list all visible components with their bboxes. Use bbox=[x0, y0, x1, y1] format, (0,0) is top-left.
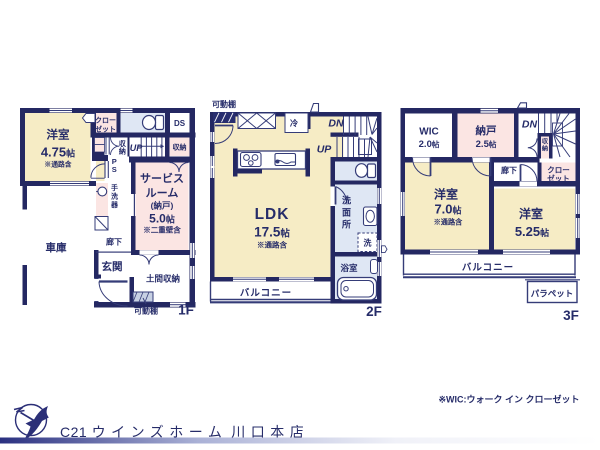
svg-text:クロー: クロー bbox=[547, 165, 570, 175]
svg-text:2F: 2F bbox=[366, 304, 382, 319]
svg-text:1F: 1F bbox=[178, 303, 194, 318]
svg-text:2.5帖: 2.5帖 bbox=[476, 139, 497, 150]
svg-text:UP: UP bbox=[130, 143, 143, 153]
svg-text:収納: 収納 bbox=[173, 143, 187, 152]
svg-text:収: 収 bbox=[542, 138, 549, 146]
svg-text:ルーム: ルーム bbox=[146, 187, 179, 200]
svg-text:DN: DN bbox=[522, 119, 538, 131]
svg-text:廊下: 廊下 bbox=[501, 165, 517, 175]
svg-text:※通路含: ※通路含 bbox=[44, 160, 71, 169]
svg-text:洋室: 洋室 bbox=[47, 128, 70, 142]
svg-text:冷: 冷 bbox=[290, 118, 298, 128]
svg-text:土間収納: 土間収納 bbox=[146, 274, 180, 284]
svg-text:3F: 3F bbox=[563, 308, 579, 323]
svg-text:器: 器 bbox=[110, 200, 119, 209]
svg-text:所: 所 bbox=[342, 219, 351, 230]
svg-text:洋室: 洋室 bbox=[519, 206, 543, 221]
svg-text:DS: DS bbox=[174, 119, 186, 128]
svg-text:※WIC:ウォーク イン クローゼット: ※WIC:ウォーク イン クローゼット bbox=[438, 394, 579, 405]
svg-text:サービス: サービス bbox=[140, 171, 184, 185]
svg-text:※二重壁含: ※二重壁含 bbox=[143, 225, 181, 235]
svg-text:洗: 洗 bbox=[364, 238, 372, 248]
svg-text:5.0帖: 5.0帖 bbox=[149, 212, 175, 226]
svg-text:洋室: 洋室 bbox=[434, 187, 458, 202]
svg-text:納: 納 bbox=[119, 146, 126, 155]
svg-text:納戸: 納戸 bbox=[476, 124, 497, 137]
svg-text:浴室: 浴室 bbox=[340, 263, 358, 273]
svg-text:手: 手 bbox=[111, 183, 118, 192]
svg-text:玄関: 玄関 bbox=[102, 260, 123, 273]
svg-text:収: 収 bbox=[119, 139, 127, 148]
svg-text:バルコニー: バルコニー bbox=[462, 262, 514, 274]
svg-text:※通路含: ※通路含 bbox=[257, 240, 287, 250]
svg-text:ゼット: ゼット bbox=[95, 125, 116, 134]
svg-text:※通路含: ※通路含 bbox=[434, 218, 464, 227]
svg-text:ゼット: ゼット bbox=[547, 173, 570, 183]
svg-text:洗: 洗 bbox=[342, 195, 351, 206]
svg-text:DN: DN bbox=[328, 118, 344, 130]
svg-text:クロー: クロー bbox=[95, 116, 116, 125]
svg-text:廊下: 廊下 bbox=[106, 237, 122, 247]
svg-text:S: S bbox=[112, 165, 117, 174]
svg-text:UP: UP bbox=[317, 144, 333, 156]
svg-text:納: 納 bbox=[542, 145, 548, 153]
svg-text:可動棚: 可動棚 bbox=[134, 306, 158, 316]
svg-text:面: 面 bbox=[342, 208, 351, 218]
svg-text:WIC: WIC bbox=[419, 127, 438, 138]
svg-text:LDK: LDK bbox=[255, 206, 290, 223]
svg-text:2.0帖: 2.0帖 bbox=[419, 139, 440, 150]
svg-text:車庫: 車庫 bbox=[46, 241, 67, 254]
svg-text:(納戸): (納戸) bbox=[151, 201, 174, 211]
svg-text:可動棚: 可動棚 bbox=[212, 99, 236, 109]
svg-text:パラペット: パラペット bbox=[531, 289, 574, 299]
svg-text:バルコニー: バルコニー bbox=[240, 287, 292, 299]
svg-text:洗: 洗 bbox=[111, 192, 118, 201]
